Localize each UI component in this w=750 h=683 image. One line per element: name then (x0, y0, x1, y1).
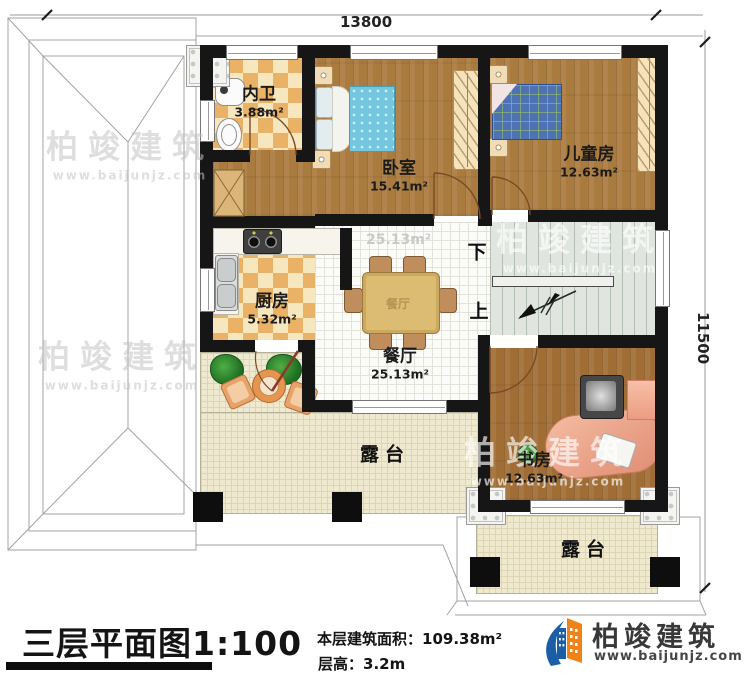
study-side-cabinet (627, 380, 658, 420)
label-stairs-up: 上 (469, 297, 488, 324)
dimension-right: 11500 (694, 312, 712, 364)
window-kitchen-west (200, 268, 215, 312)
wall-kids-west (478, 58, 490, 210)
bedroom-pillow-1 (316, 87, 333, 118)
dining-table-watermark: 餐厅 (386, 295, 410, 312)
floor-area-value: 109.38m² (422, 630, 502, 648)
room-name: 厨房 (247, 291, 296, 311)
wall-study-south-b (623, 500, 668, 512)
wall-kids-south-a (478, 210, 492, 226)
title-underline (6, 662, 212, 670)
wall-dining-south-b (445, 400, 482, 412)
floor-area-info: 本层建筑面积：109.38m² (317, 628, 502, 649)
kids-nightstand-top (489, 65, 508, 84)
watermark-text: 柏竣建筑 (46, 122, 214, 168)
window-bathroom-west (200, 100, 215, 142)
wall-bathroom-east (302, 58, 315, 162)
wall-study-south-a (478, 500, 530, 512)
window-dining-south (352, 400, 447, 414)
terrace-column-1 (193, 492, 223, 522)
terrace-table (252, 369, 286, 403)
floor-plan: 餐厅 (0, 0, 750, 683)
brand-logo-icon (543, 616, 587, 668)
wall-stairs-south-b (538, 335, 668, 348)
wall-stairs-south-a (478, 335, 490, 348)
label-stairs-down: 下 (467, 238, 486, 265)
window-kids-north (528, 45, 622, 60)
stair-handrail (492, 276, 614, 287)
wall-dining-south-a (302, 400, 352, 412)
label-terrace-left: 露台 (360, 440, 410, 467)
label-kitchen: 厨房 5.32m² (247, 291, 296, 326)
room-area: 12.63m² (505, 471, 563, 486)
bedroom-bed (349, 86, 395, 152)
room-name: 书房 (505, 450, 563, 470)
wall-bedroom-south (315, 214, 434, 226)
dining-chair-right (438, 288, 457, 313)
title-text: 三层平面图 (22, 624, 192, 663)
wall-corridor-kitchen (204, 216, 315, 228)
watermark-1: 柏竣建筑 www.baijunjz.com (46, 122, 214, 183)
wall-kitchen-south-a (204, 340, 255, 352)
left-roof-outline (8, 18, 196, 550)
label-terrace-bottom: 露台 (561, 535, 611, 562)
dining-chair-left (344, 288, 363, 313)
floor-height-value: 3.2m (363, 655, 405, 673)
brand-website: www.baijunjz.com (594, 649, 743, 664)
wall-study-west (478, 348, 490, 500)
room-area: 5.32m² (247, 312, 296, 327)
window-bathroom-north (226, 45, 298, 60)
terrace-column-2 (332, 492, 362, 522)
kitchen-sink-basin-2 (217, 284, 236, 308)
label-study: 书房 12.63m² (505, 450, 563, 485)
label-bedroom: 卧室 15.41m² (370, 158, 428, 193)
terrace-column-4 (650, 557, 680, 587)
title-scale: 1:100 (192, 624, 302, 663)
label-bathroom: 内卫 3.88m² (234, 84, 283, 119)
room-name: 餐厅 (371, 346, 429, 366)
drawing-title: 三层平面图1:100 (22, 617, 302, 665)
wall-kitchen-dining-upper (340, 228, 352, 290)
room-area: 12.63m² (560, 165, 618, 180)
room-name: 内卫 (234, 84, 283, 104)
stove (243, 229, 282, 254)
room-name: 卧室 (370, 158, 428, 178)
bathroom-sink-basin (221, 124, 237, 146)
window-stairs-east (655, 230, 670, 307)
watermark-url: www.baijunjz.com (53, 169, 208, 183)
wall-kids-south-b (528, 210, 668, 222)
bathtub-drain (220, 86, 228, 94)
wall-bathroom-south-b (296, 150, 315, 162)
dimension-top: 13800 (340, 13, 392, 31)
room-area: 3.88m² (234, 105, 283, 120)
kitchen-sink-basin-1 (217, 258, 236, 282)
watermark-url: www.baijunjz.com (45, 379, 200, 393)
floor-height-info: 层高：3.2m (318, 653, 405, 674)
room-area: 15.41m² (370, 179, 428, 194)
kids-nightstand-bottom (489, 138, 508, 157)
bedroom-wardrobe (453, 70, 480, 170)
floor-height-label: 层高： (318, 655, 363, 673)
room-area: 25.13m² (371, 367, 429, 382)
wall-bathroom-south-a (204, 150, 250, 162)
label-dining-faint-area: 25.13m² (366, 232, 431, 248)
bedroom-nightstand-top (314, 66, 333, 85)
label-dining: 餐厅 25.13m² (371, 346, 429, 381)
watermark-3: 柏竣建筑 www.baijunjz.com (38, 332, 206, 393)
label-kids-room: 儿童房 12.63m² (560, 144, 618, 179)
floor-area-label: 本层建筑面积： (317, 630, 422, 648)
window-bedroom-north (350, 45, 438, 60)
bedroom-pillow-2 (316, 119, 333, 150)
monitor-screen (586, 381, 616, 411)
watermark-text: 柏竣建筑 (38, 332, 206, 378)
window-study-south (530, 500, 625, 514)
terrace-column-3 (470, 557, 500, 587)
room-name: 儿童房 (560, 144, 618, 164)
